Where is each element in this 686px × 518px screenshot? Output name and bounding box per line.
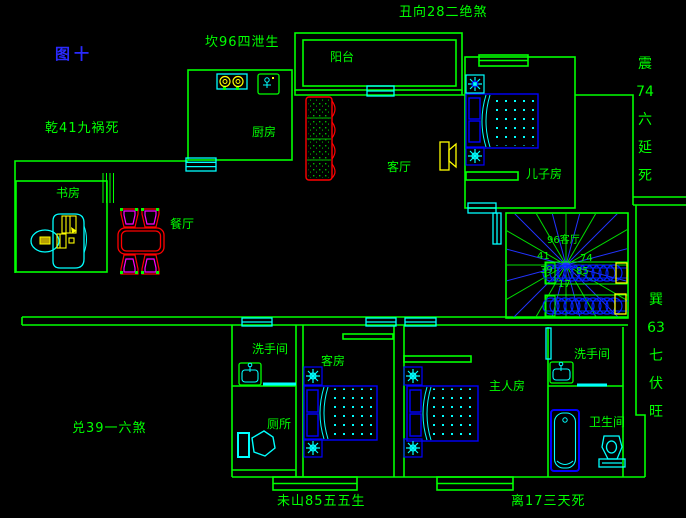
nightstand-symbol [466, 75, 484, 93]
wall-left [15, 161, 188, 273]
bathtub [551, 410, 579, 471]
study-chair-cushion [40, 237, 50, 244]
fengshui-label-southeast: 巽 63 七 伏 旺 [645, 286, 667, 426]
guest-room-shelf [343, 334, 393, 339]
nightstand-symbol [304, 439, 322, 457]
room-label-washroom2: 洗手间 [574, 347, 610, 361]
dining-chairs [120, 208, 159, 274]
stair-compass-number: 41 [537, 252, 550, 262]
floorplan: 图十 坎96四泄生 丑向28二绝煞 乾41九祸死 震 74 六 延 死 巽 63… [0, 0, 686, 518]
stove [217, 74, 247, 90]
study-desk [31, 214, 87, 268]
sons-bed [466, 94, 538, 148]
stair-compass-number: 85 [576, 267, 589, 277]
room-label-balcony: 阳台 [330, 50, 354, 64]
washbasin-lower-left [239, 363, 261, 385]
toilet-lower-left [238, 431, 275, 457]
fengshui-label-south-center: 未山85五五生 [277, 495, 366, 509]
room-label-bathroom: 卫生间 [589, 415, 625, 429]
bay-window-left [273, 477, 357, 490]
room-label-sons-room: 儿子房 [526, 167, 562, 181]
fengshui-label-north: 坎96四泄生 [205, 36, 280, 50]
washbasin-right [550, 362, 573, 383]
fengshui-label-east: 震 74 六 延 死 [634, 50, 656, 190]
guest-bed [304, 386, 377, 440]
balcony-inner-wall [303, 40, 456, 86]
sofa [306, 97, 335, 180]
study-door-panel [103, 173, 114, 203]
kitchen-sink [258, 74, 279, 94]
wall-right-upper [575, 95, 686, 205]
stair-compass-number: 39 [540, 266, 553, 276]
master-room-shelf [404, 356, 471, 362]
fengshui-label-northeast: 丑向28二绝煞 [399, 6, 488, 20]
nightstand-symbol [404, 439, 422, 457]
stair-compass-number: 17 [558, 280, 571, 290]
dining-table [118, 228, 164, 254]
room-label-study: 书房 [56, 186, 80, 200]
computer [57, 216, 77, 248]
balcony-outer-wall [295, 33, 462, 90]
stair-compass-center-label: 96客厅 [547, 236, 580, 246]
room-label-toilet: 厕所 [267, 417, 291, 431]
bay-window-right [437, 477, 513, 490]
stair-compass-number: 74 [580, 254, 593, 264]
room-label-master: 主人房 [489, 379, 525, 393]
nightstand-symbol [466, 147, 484, 165]
room-label-washroom1: 洗手间 [252, 342, 288, 356]
fengshui-label-northwest: 乾41九祸死 [45, 122, 120, 136]
wall-right-lower [636, 205, 645, 477]
sons-room-bottom-window [468, 203, 496, 213]
nightstand-symbol [304, 367, 322, 385]
master-bed [407, 386, 478, 441]
fengshui-label-west: 兑39一六煞 [72, 422, 147, 436]
room-label-dining: 餐厅 [170, 217, 194, 231]
sons-room-shelf [466, 172, 518, 180]
speaker [440, 142, 456, 170]
kitchen-walls [188, 70, 292, 160]
toilet-bathroom [599, 436, 625, 467]
room-label-living: 客厅 [387, 160, 411, 174]
room-label-kitchen: 厨房 [252, 125, 276, 139]
figure-title: 图十 [55, 47, 93, 61]
room-label-guest: 客房 [321, 354, 345, 368]
fengshui-label-south-right: 离17三天死 [511, 495, 586, 509]
stair-tread-lower [543, 294, 628, 317]
stair-side-window [493, 213, 501, 244]
windows-doors [186, 86, 607, 385]
nightstand-symbol [404, 367, 422, 385]
